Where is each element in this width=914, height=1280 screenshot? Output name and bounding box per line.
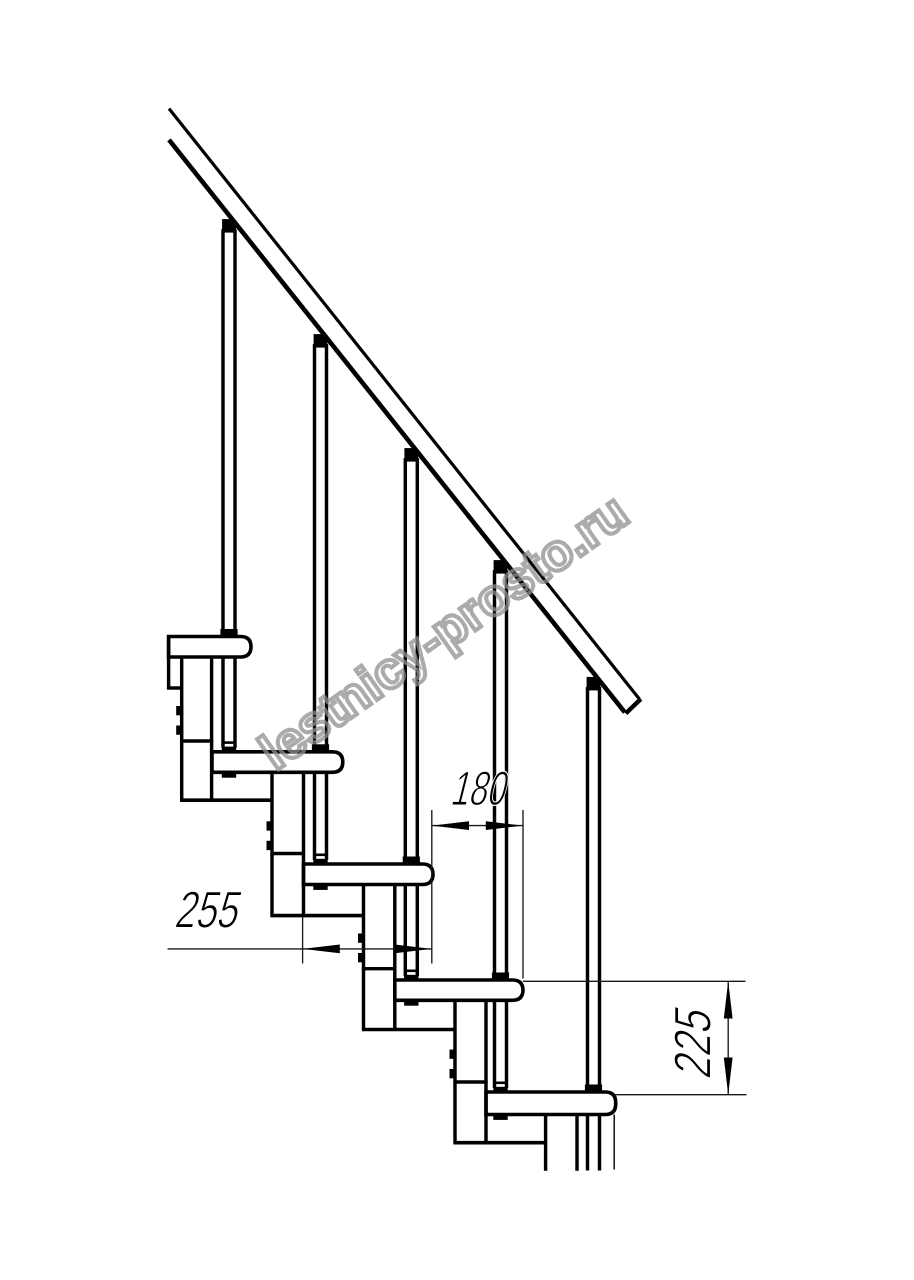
svg-text:180: 180 xyxy=(447,762,515,816)
svg-text:225: 225 xyxy=(665,1001,723,1083)
svg-text:255: 255 xyxy=(171,882,248,940)
